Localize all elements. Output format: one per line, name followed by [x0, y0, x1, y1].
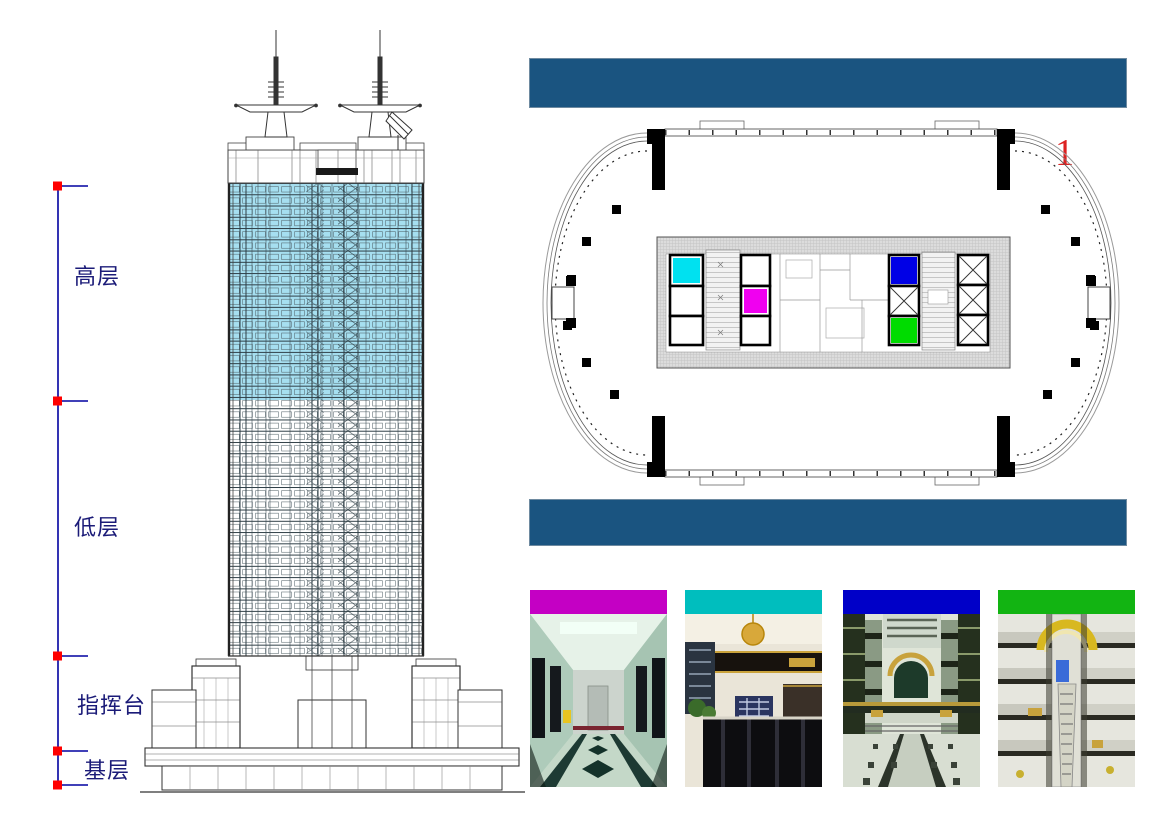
tower-window-grid — [228, 183, 424, 656]
label-low-floors: 低层 — [74, 510, 120, 542]
corridor-photo — [530, 590, 667, 787]
floor-plan — [540, 112, 1130, 492]
atrium-photo-image — [843, 614, 980, 787]
atrium-photo-header — [843, 590, 980, 614]
top-title-bar — [529, 58, 1127, 108]
antenna-mast-right — [339, 30, 422, 137]
lobby-photo-image — [685, 614, 822, 787]
middle-title-bar — [529, 499, 1127, 546]
foundation — [140, 748, 525, 792]
lobby-photo-header — [685, 590, 822, 614]
antenna-mast-left — [235, 30, 318, 137]
atrium-photo — [843, 590, 980, 787]
presentation-slide: 高层 低层 指挥台 基层 — [0, 0, 1157, 814]
roof-notch-beam — [316, 168, 358, 175]
escalator-photo-image — [998, 614, 1135, 787]
tower-core-stripe-right — [338, 183, 358, 656]
label-command-platform: 指挥台 — [77, 688, 146, 720]
plan-green-zone — [891, 318, 917, 343]
building-elevation — [140, 20, 535, 800]
corridor-photo-header — [530, 590, 667, 614]
roof-structures — [228, 137, 424, 183]
label-high-floors: 高层 — [74, 259, 120, 291]
escalator-photo-header — [998, 590, 1135, 614]
plan-magenta-zone — [744, 289, 767, 313]
plan-core — [657, 237, 1010, 368]
plan-blue-zone — [891, 257, 917, 284]
label-base-level: 基层 — [84, 753, 130, 785]
tower-core-stripe-left — [306, 183, 324, 656]
plan-cyan-zone — [673, 258, 700, 283]
lobby-photo — [685, 590, 822, 787]
podium — [152, 656, 502, 748]
escalator-photo — [998, 590, 1135, 787]
corridor-photo-image — [530, 614, 667, 787]
